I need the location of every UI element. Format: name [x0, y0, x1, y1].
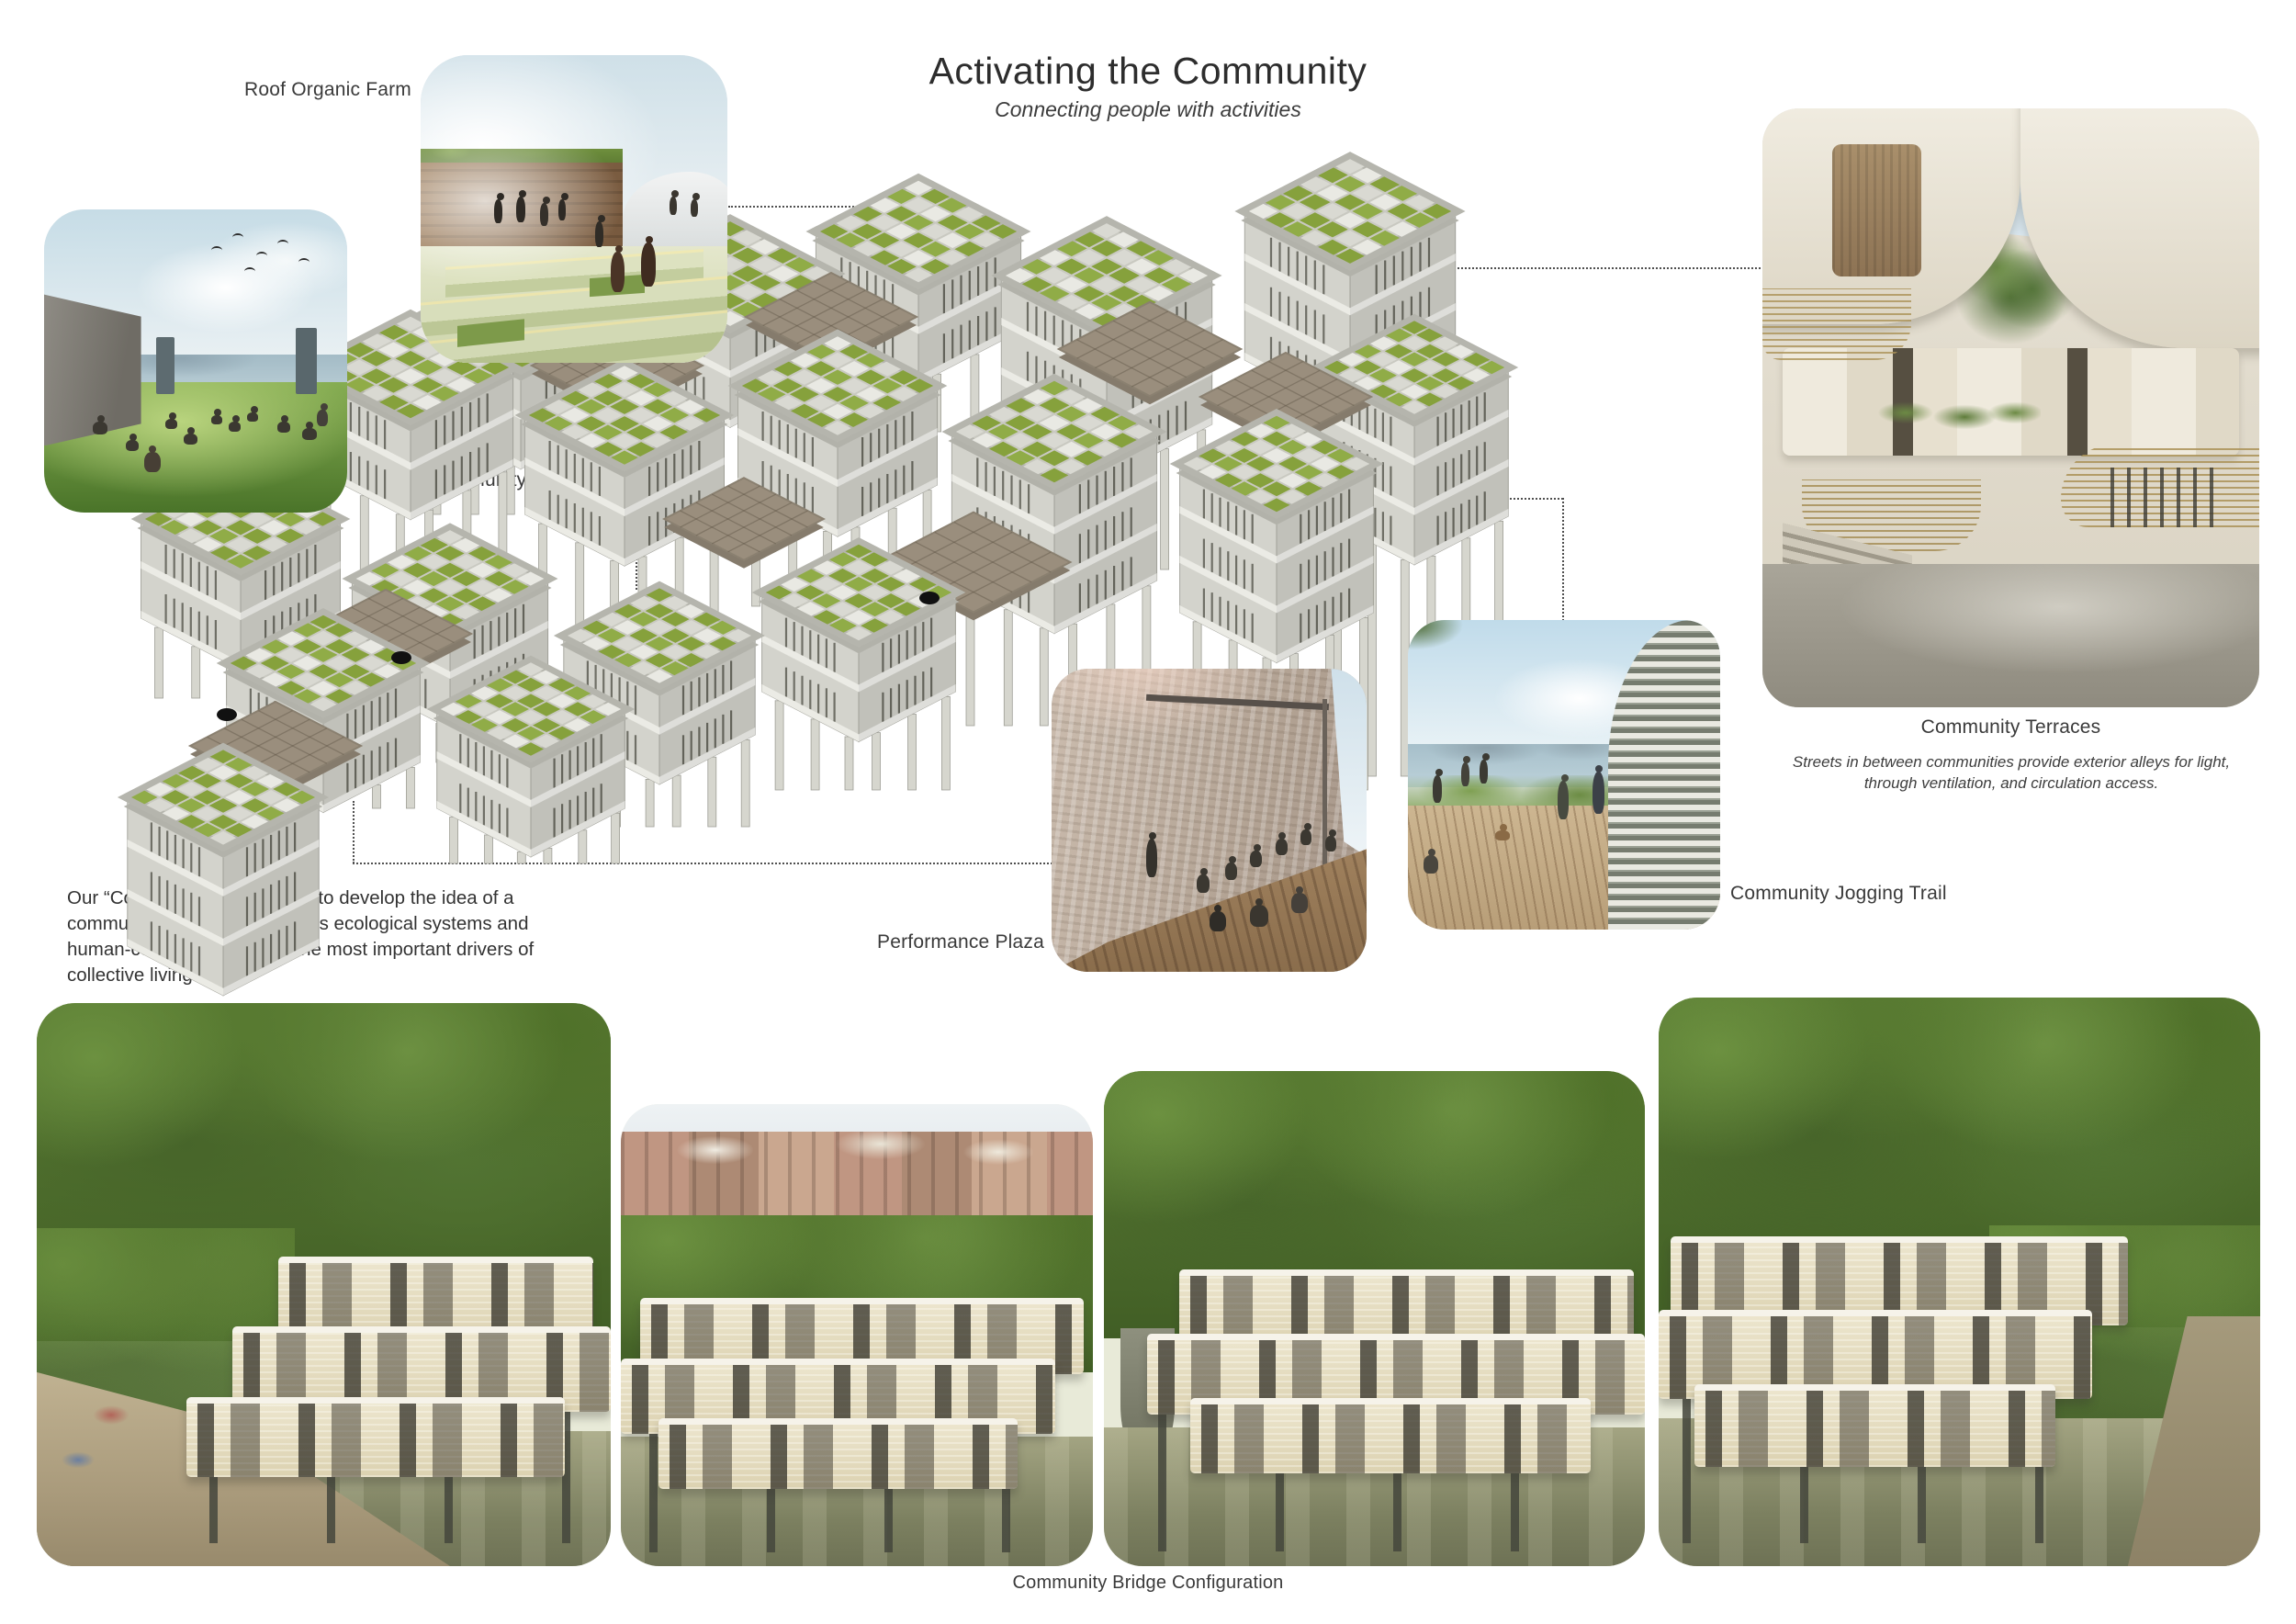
leader-roof-farm-h: [728, 206, 883, 208]
figure-silhouette: [93, 422, 107, 434]
label-leisure-community-park: Leisure Community Park: [357, 469, 572, 491]
figure-silhouette: [1558, 781, 1569, 819]
figure-silhouette: [691, 199, 698, 217]
leader-terraces-h: [1303, 267, 1761, 269]
figure-silhouette: [494, 199, 502, 223]
leader-terraces-v: [1303, 267, 1305, 387]
leader-plaza-v: [353, 801, 355, 863]
figure-silhouette: [595, 221, 603, 247]
figure-silhouette: [1325, 836, 1336, 851]
figure-silhouette: [1480, 760, 1488, 784]
housing-row: [658, 1418, 1018, 1489]
planters: [1872, 396, 2041, 438]
figure-silhouette: [1225, 863, 1237, 880]
bird-mark: [244, 267, 255, 276]
bird-mark: [211, 246, 222, 254]
figure-silhouette: [126, 440, 139, 451]
figure-silhouette: [277, 422, 290, 433]
figure-silhouette: [1197, 874, 1210, 893]
figure-silhouette: [1210, 911, 1226, 931]
leader-jogging-v: [1562, 498, 1564, 621]
housing-row: [1190, 1398, 1591, 1473]
figure-silhouette: [1250, 851, 1262, 867]
bird-mark: [232, 233, 243, 242]
door-pillar: [296, 328, 317, 395]
access-core-dot: [391, 651, 411, 664]
photo-leisure-community-park: [44, 209, 347, 513]
bird-mark: [277, 240, 288, 248]
figure-silhouette: [1495, 830, 1510, 840]
photo-community-jogging-trail: [1408, 620, 1720, 930]
gold-railing: [1762, 288, 1911, 360]
leader-roof-farm-v: [882, 206, 884, 417]
tree-branch: [1408, 620, 1477, 670]
figure-silhouette: [211, 415, 222, 424]
presentation-board: Activating the Community Connecting peop…: [0, 0, 2296, 1624]
photo-roof-organic-farm: [421, 55, 727, 363]
figure-silhouette: [1424, 855, 1438, 874]
figure-silhouette: [1146, 839, 1157, 877]
intro-paragraph: Our “Core Community” led us to develop t…: [67, 885, 595, 988]
photo-bridge-panel-2: [621, 1104, 1093, 1566]
label-community-bridge-configuration: Community Bridge Configuration: [0, 1573, 2296, 1594]
figure-silhouette: [558, 199, 566, 220]
access-core-dot: [919, 592, 940, 604]
figure-silhouette: [247, 412, 258, 422]
bar-stools: [2110, 468, 2220, 527]
housing-row: [1694, 1384, 2055, 1468]
figure-silhouette: [144, 452, 161, 472]
walkway-floor: [1762, 564, 2259, 707]
fog-haze: [421, 117, 636, 286]
wood-core: [1832, 144, 1921, 276]
figure-silhouette: [184, 434, 197, 445]
photo-bridge-panel-1: [37, 1003, 611, 1566]
caption-community-terraces: Streets in between communities provide e…: [1782, 751, 2241, 794]
figure-silhouette: [229, 422, 241, 432]
figure-silhouette: [1291, 893, 1308, 913]
figure-silhouette: [1461, 762, 1469, 786]
bird-mark: [298, 258, 310, 266]
figure-silhouette: [516, 197, 525, 222]
figure-silhouette: [165, 419, 177, 429]
access-core-dot: [217, 708, 237, 721]
label-community-jogging-trail: Community Jogging Trail: [1730, 883, 1947, 905]
housing-row: [186, 1397, 566, 1477]
figure-silhouette: [1276, 839, 1288, 855]
label-community-terraces: Community Terraces: [1762, 716, 2259, 739]
label-roof-organic-farm: Roof Organic Farm: [147, 79, 411, 101]
figure-silhouette: [302, 428, 317, 440]
figure-silhouette: [1250, 905, 1268, 927]
leader-jogging-h: [1378, 498, 1563, 500]
bird-mark: [256, 252, 267, 260]
door-pillar: [156, 337, 174, 395]
photo-bridge-panel-4: [1659, 998, 2260, 1566]
figure-silhouette: [1300, 829, 1311, 845]
photo-performance-plaza: [1052, 669, 1367, 972]
photo-community-terraces: [1762, 108, 2259, 707]
figure-silhouette: [317, 410, 328, 426]
figure-silhouette: [540, 203, 548, 226]
figure-silhouette: [1593, 772, 1604, 814]
label-performance-plaza: Performance Plaza: [827, 931, 1044, 953]
photo-bridge-panel-3: [1104, 1071, 1645, 1566]
leader-plaza-h: [353, 863, 1052, 864]
leader-leisure-v: [636, 393, 637, 590]
figure-silhouette: [641, 242, 656, 287]
figure-silhouette: [670, 197, 677, 215]
figure-silhouette: [611, 252, 625, 292]
leader-leisure-h: [348, 393, 636, 395]
figure-silhouette: [1433, 775, 1442, 803]
